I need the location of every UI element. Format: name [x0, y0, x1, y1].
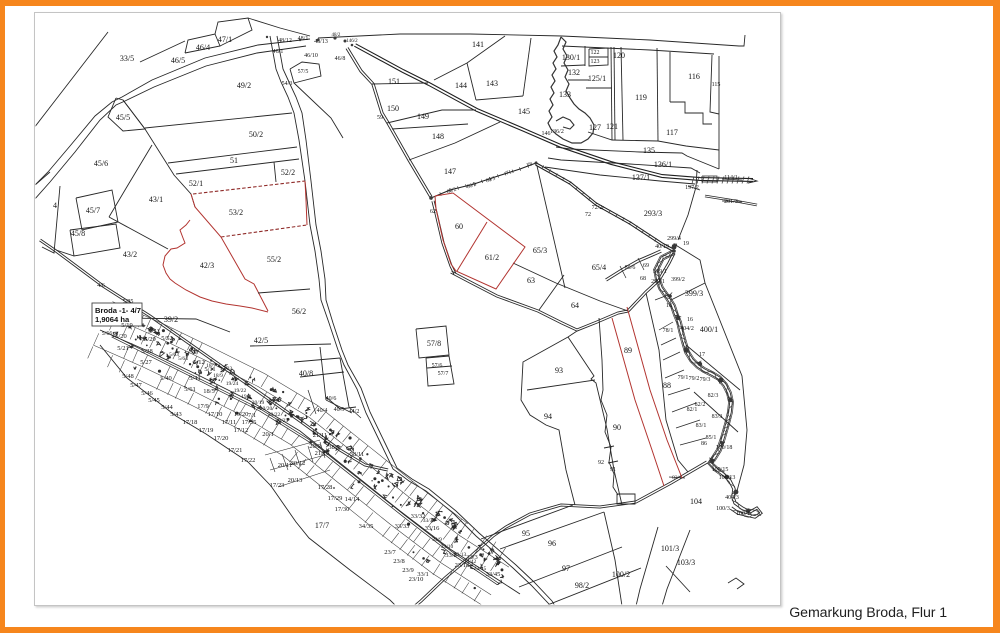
svg-text:137/1: 137/1	[632, 173, 650, 182]
svg-text:78/1: 78/1	[663, 328, 674, 334]
svg-text:95: 95	[522, 529, 530, 538]
svg-text:146: 146	[542, 131, 551, 137]
svg-text:33/32: 33/32	[411, 513, 426, 520]
svg-text:5/41: 5/41	[189, 375, 201, 382]
svg-text:66/5: 66/5	[485, 176, 496, 185]
svg-text:115: 115	[712, 82, 721, 88]
svg-text:17/35: 17/35	[242, 419, 257, 426]
svg-text:17/28: 17/28	[318, 484, 333, 491]
svg-text:127: 127	[589, 123, 601, 132]
svg-text:133: 133	[559, 90, 571, 99]
svg-text:17/23: 17/23	[270, 482, 285, 489]
svg-text:5/45: 5/45	[148, 397, 160, 404]
svg-text:59: 59	[377, 115, 383, 121]
svg-text:42/3: 42/3	[200, 261, 214, 270]
svg-text:5/44: 5/44	[161, 404, 173, 411]
svg-text:17/22: 17/22	[241, 457, 256, 464]
svg-text:91: 91	[610, 467, 616, 473]
svg-text:56/2: 56/2	[292, 307, 306, 316]
svg-text:47/1: 47/1	[218, 35, 232, 44]
svg-text:45/7: 45/7	[86, 206, 100, 215]
svg-text:55/2: 55/2	[267, 255, 281, 264]
svg-text:135: 135	[643, 146, 655, 155]
svg-text:45/8: 45/8	[71, 229, 85, 238]
svg-text:90: 90	[613, 423, 621, 432]
svg-text:141: 141	[472, 40, 484, 49]
svg-text:19/20: 19/20	[234, 411, 249, 418]
svg-text:299/4: 299/4	[667, 236, 681, 242]
svg-text:17/18: 17/18	[183, 419, 198, 426]
svg-text:399/1: 399/1	[653, 269, 667, 275]
svg-text:48/12: 48/12	[278, 38, 292, 44]
svg-text:121: 121	[606, 122, 618, 131]
svg-text:33/45: 33/45	[486, 571, 501, 578]
svg-text:50/2: 50/2	[249, 130, 263, 139]
svg-text:82/1: 82/1	[687, 407, 698, 413]
svg-text:46/10: 46/10	[304, 53, 318, 59]
svg-text:100/15: 100/15	[712, 467, 729, 473]
svg-text:14/14: 14/14	[345, 496, 361, 503]
svg-text:40/19: 40/19	[655, 244, 669, 250]
svg-text:51: 51	[230, 156, 238, 165]
svg-text:17/10: 17/10	[208, 411, 223, 418]
svg-text:79/1: 79/1	[678, 375, 689, 381]
svg-text:100/2: 100/2	[612, 570, 630, 579]
svg-text:82/3: 82/3	[708, 393, 719, 399]
svg-text:5/29: 5/29	[144, 336, 156, 343]
svg-text:104: 104	[690, 497, 702, 506]
svg-text:45/6: 45/6	[94, 159, 108, 168]
svg-text:117: 117	[666, 128, 678, 137]
svg-text:33/3: 33/3	[466, 554, 478, 561]
svg-text:34/35: 34/35	[359, 523, 374, 530]
svg-text:19: 19	[683, 241, 689, 247]
svg-text:146/2: 146/2	[346, 39, 358, 44]
svg-text:20/13: 20/13	[288, 477, 303, 484]
svg-text:18: 18	[666, 303, 672, 309]
svg-text:40/5: 40/5	[334, 407, 345, 413]
svg-text:17/29: 17/29	[328, 495, 343, 502]
svg-text:150: 150	[387, 104, 399, 113]
svg-text:151: 151	[388, 77, 400, 86]
svg-text:122: 122	[591, 50, 600, 56]
svg-text:4/6: 4/6	[97, 283, 105, 289]
svg-text:17/21: 17/21	[228, 447, 243, 454]
svg-text:5/43: 5/43	[170, 411, 182, 418]
svg-text:89: 89	[624, 346, 632, 355]
svg-text:7/1: 7/1	[248, 412, 256, 419]
svg-text:136/1: 136/1	[654, 160, 672, 169]
svg-text:21/11: 21/11	[313, 432, 328, 439]
svg-text:46/8: 46/8	[335, 56, 346, 62]
svg-text:5/46: 5/46	[141, 390, 153, 397]
svg-text:17/11: 17/11	[222, 419, 237, 426]
svg-text:46/1: 46/1	[273, 49, 284, 55]
svg-text:68: 68	[640, 276, 646, 282]
svg-text:23/8: 23/8	[393, 558, 405, 565]
svg-text:5/40: 5/40	[160, 375, 172, 382]
svg-text:17/12: 17/12	[234, 427, 249, 434]
svg-text:33/16: 33/16	[425, 525, 441, 532]
svg-text:404/2: 404/2	[680, 326, 694, 332]
svg-text:197/2: 197/2	[685, 185, 699, 191]
svg-text:48/2: 48/2	[332, 33, 341, 38]
svg-text:5/66: 5/66	[102, 331, 113, 337]
svg-text:65/4: 65/4	[592, 263, 606, 272]
svg-text:144: 144	[455, 81, 467, 90]
svg-text:79/3: 79/3	[700, 377, 711, 383]
svg-text:60: 60	[455, 222, 463, 231]
svg-text:Broda -1- 4/7: Broda -1- 4/7	[95, 306, 141, 315]
svg-text:145: 145	[518, 107, 530, 116]
svg-text:88: 88	[663, 381, 671, 390]
svg-text:57/7: 57/7	[438, 371, 449, 377]
svg-text:5/27: 5/27	[140, 359, 152, 366]
svg-text:17/30: 17/30	[335, 506, 350, 513]
svg-text:57/8: 57/8	[427, 339, 441, 348]
svg-text:100/3: 100/3	[716, 506, 730, 512]
svg-text:65/3: 65/3	[533, 246, 547, 255]
svg-text:33/1: 33/1	[417, 571, 429, 578]
svg-text:17/19: 17/19	[199, 427, 214, 434]
svg-text:100/18: 100/18	[716, 445, 733, 451]
svg-text:20/1: 20/1	[262, 431, 274, 438]
svg-text:23/7: 23/7	[384, 549, 396, 556]
svg-text:38/3: 38/3	[328, 444, 340, 451]
svg-text:33/33: 33/33	[395, 523, 410, 530]
svg-text:52/1: 52/1	[189, 179, 203, 188]
svg-text:20/23: 20/23	[276, 418, 289, 424]
svg-text:54/3: 54/3	[282, 81, 293, 87]
svg-text:4: 4	[53, 201, 57, 210]
svg-text:5/19: 5/19	[121, 322, 133, 329]
svg-text:5/64: 5/64	[178, 356, 188, 362]
svg-text:62: 62	[430, 209, 436, 215]
svg-text:92: 92	[598, 460, 604, 466]
svg-text:21/10: 21/10	[315, 450, 330, 457]
svg-text:125/1: 125/1	[588, 74, 606, 83]
svg-text:143: 143	[486, 79, 498, 88]
svg-text:19/2: 19/2	[241, 394, 251, 400]
svg-text:97: 97	[562, 564, 570, 573]
svg-text:38/11: 38/11	[350, 451, 365, 458]
svg-text:78: 78	[526, 161, 533, 168]
svg-text:96: 96	[548, 539, 556, 548]
svg-text:40/6: 40/6	[326, 396, 337, 402]
svg-text:85/1: 85/1	[706, 435, 717, 441]
svg-text:69: 69	[643, 263, 649, 269]
svg-text:79/2: 79/2	[689, 376, 700, 382]
svg-text:399/3: 399/3	[685, 289, 703, 298]
svg-text:149: 149	[417, 112, 429, 121]
svg-text:100/1: 100/1	[736, 511, 750, 517]
svg-text:119: 119	[635, 93, 647, 102]
svg-text:103/3: 103/3	[677, 558, 695, 567]
svg-text:130/1: 130/1	[562, 53, 580, 62]
svg-text:293/3: 293/3	[644, 209, 662, 218]
svg-text:17/9: 17/9	[197, 403, 209, 410]
svg-text:114/1: 114/1	[724, 175, 737, 181]
svg-text:5/51: 5/51	[148, 328, 160, 335]
svg-text:33/8: 33/8	[445, 552, 457, 559]
svg-text:49/2: 49/2	[237, 81, 251, 90]
svg-text:147: 147	[444, 167, 456, 176]
svg-text:72: 72	[585, 212, 591, 218]
svg-text:120: 120	[613, 51, 625, 60]
svg-text:201/3: 201/3	[724, 199, 738, 205]
svg-text:5/28: 5/28	[141, 348, 153, 355]
svg-text:39/2: 39/2	[164, 315, 178, 324]
svg-text:123: 123	[591, 59, 600, 65]
svg-text:20/9: 20/9	[309, 443, 321, 450]
svg-text:5/20: 5/20	[115, 333, 127, 340]
svg-text:5/48: 5/48	[122, 373, 134, 380]
svg-text:66/2: 66/2	[446, 187, 457, 196]
svg-text:5/52: 5/52	[161, 335, 173, 342]
svg-text:23/45: 23/45	[474, 566, 487, 572]
svg-text:46/5: 46/5	[171, 56, 185, 65]
svg-text:52/2: 52/2	[281, 168, 295, 177]
svg-text:83/3: 83/3	[712, 414, 723, 420]
svg-text:57/6: 57/6	[432, 363, 443, 369]
svg-text:5/11: 5/11	[204, 366, 215, 373]
svg-text:71: 71	[505, 169, 512, 176]
svg-text:53/2: 53/2	[229, 208, 243, 217]
svg-text:19/24: 19/24	[226, 381, 239, 387]
svg-text:66/3: 66/3	[466, 182, 477, 191]
svg-text:132: 132	[568, 68, 580, 77]
svg-text:17/20: 17/20	[214, 435, 229, 442]
svg-text:17: 17	[699, 352, 705, 358]
svg-text:17/7: 17/7	[315, 521, 329, 530]
svg-text:33/9: 33/9	[432, 537, 442, 543]
svg-text:5/85: 5/85	[123, 299, 134, 305]
svg-text:94: 94	[544, 412, 552, 421]
svg-text:61/2: 61/2	[485, 253, 499, 262]
svg-text:72/2: 72/2	[592, 205, 603, 211]
svg-text:42/5: 42/5	[254, 336, 268, 345]
svg-text:136/2: 136/2	[550, 129, 564, 135]
svg-text:64: 64	[571, 301, 579, 310]
svg-text:43/1: 43/1	[149, 195, 163, 204]
svg-text:17/33: 17/33	[220, 366, 233, 372]
svg-text:5/12: 5/12	[193, 359, 205, 366]
svg-text:86: 86	[701, 441, 707, 447]
svg-text:44/2: 44/2	[349, 409, 360, 415]
svg-text:100/13: 100/13	[719, 475, 736, 481]
svg-text:48/13: 48/13	[314, 39, 328, 45]
svg-text:45/5: 45/5	[116, 113, 130, 122]
svg-text:40/8: 40/8	[299, 369, 313, 378]
svg-text:93: 93	[555, 366, 563, 375]
svg-text:299/1: 299/1	[651, 279, 665, 285]
svg-text:18/9: 18/9	[213, 373, 223, 379]
svg-text:83/1: 83/1	[696, 423, 707, 429]
svg-text:404/3: 404/3	[725, 495, 739, 501]
svg-text:33/5: 33/5	[120, 54, 134, 63]
svg-text:98/2: 98/2	[575, 581, 589, 590]
svg-text:5/21: 5/21	[117, 345, 129, 352]
svg-text:33/10: 33/10	[441, 544, 454, 550]
svg-text:43/2: 43/2	[123, 250, 137, 259]
svg-text:5/61: 5/61	[184, 386, 196, 393]
svg-text:400/1: 400/1	[700, 325, 718, 334]
svg-text:23/9: 23/9	[402, 567, 414, 574]
svg-text:16: 16	[687, 317, 693, 323]
svg-text:63: 63	[527, 276, 535, 285]
svg-text:5/47: 5/47	[130, 382, 142, 389]
svg-text:116: 116	[688, 72, 700, 81]
svg-text:85/6: 85/6	[625, 265, 636, 271]
svg-text:148: 148	[432, 132, 444, 141]
svg-text:101/3: 101/3	[661, 544, 679, 553]
svg-text:18/5: 18/5	[203, 388, 215, 395]
svg-text:23/18: 23/18	[455, 562, 470, 569]
svg-text:48/1: 48/1	[298, 36, 309, 42]
svg-text:46/4: 46/4	[196, 43, 210, 52]
svg-text:399/2: 399/2	[671, 277, 685, 283]
svg-text:20/12: 20/12	[291, 460, 306, 467]
svg-text:57/5: 57/5	[298, 69, 309, 75]
svg-text:40/4: 40/4	[317, 408, 328, 414]
